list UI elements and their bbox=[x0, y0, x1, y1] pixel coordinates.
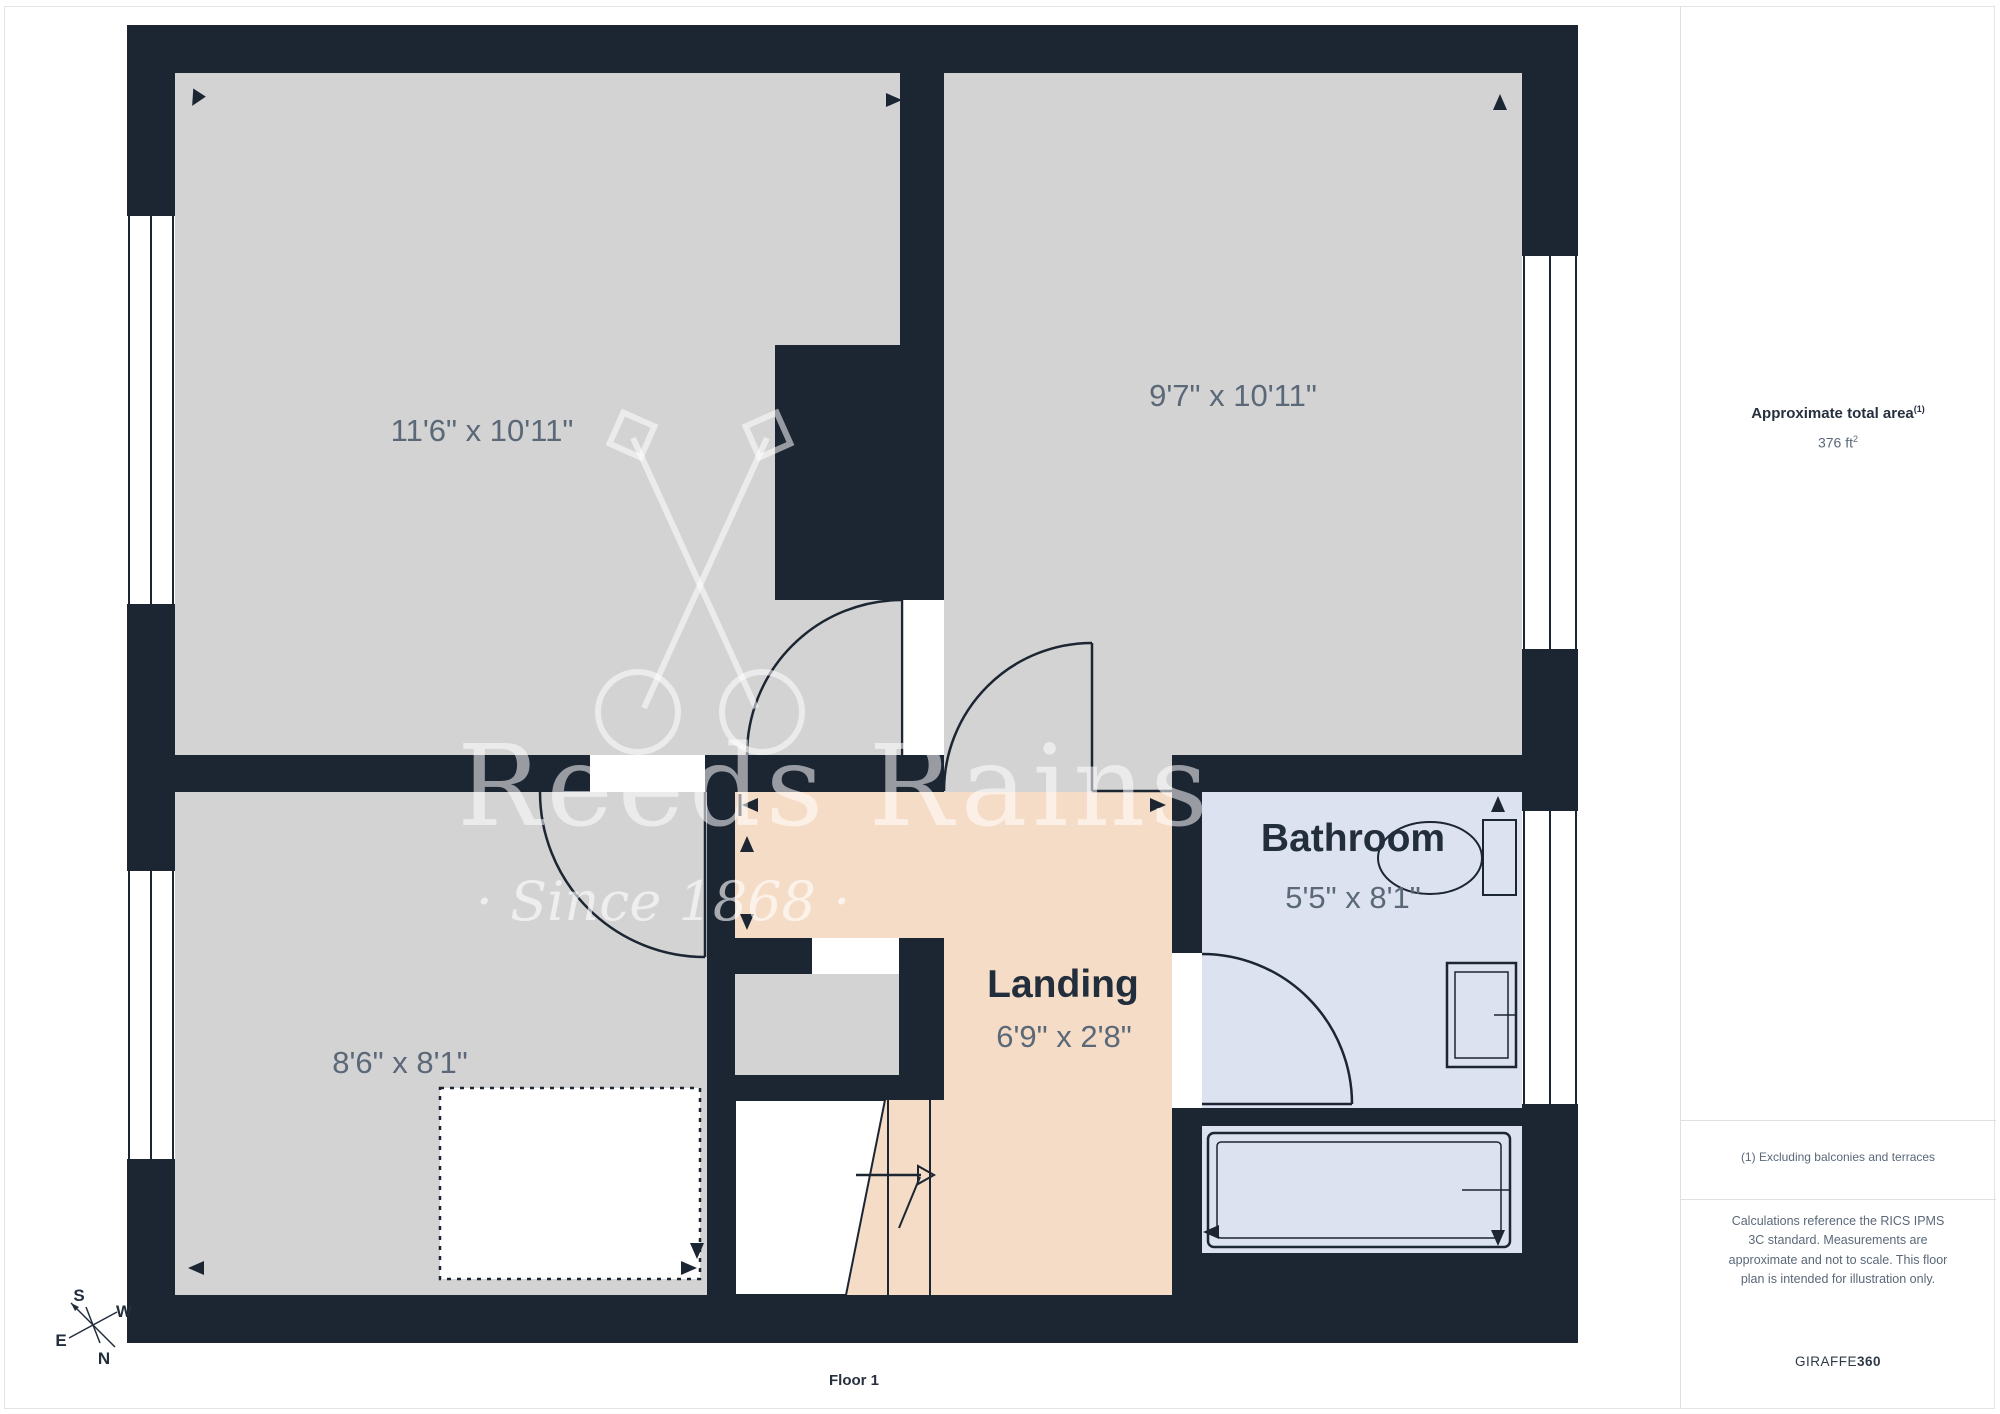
disclaimer-text: Calculations reference the RICS IPMS 3C … bbox=[1722, 1212, 1954, 1290]
compass-w: W bbox=[116, 1302, 133, 1321]
label-landing-name: Landing bbox=[987, 963, 1139, 1006]
chimney-block bbox=[775, 345, 944, 600]
giraffe360-logo-suffix: 360 bbox=[1857, 1354, 1881, 1369]
label-top-right-room-dims: 9'7" x 10'11" bbox=[1149, 378, 1317, 413]
wall-top bbox=[127, 25, 1578, 73]
window-top-right bbox=[1522, 255, 1578, 650]
wall-partition-top bbox=[900, 73, 944, 345]
floor-label: Floor 1 bbox=[754, 1372, 954, 1389]
storage-dashed-box bbox=[440, 1088, 700, 1279]
compass-e: E bbox=[55, 1331, 66, 1350]
total-area-title-text: Approximate total area bbox=[1751, 405, 1914, 422]
window-top-left bbox=[127, 215, 175, 605]
footnote-excluding-balconies: (1) Excluding balconies and terraces bbox=[1690, 1150, 1986, 1164]
closet-door-opening bbox=[812, 938, 899, 974]
wall-bathroom-top bbox=[1172, 755, 1578, 792]
floorplan-page: Reeds Rains · Since 1868 · 11'6" x 10'11… bbox=[0, 0, 2000, 1414]
wall-closet-bottom bbox=[707, 1075, 944, 1100]
wall-bottom-left-room-right bbox=[707, 792, 735, 1295]
sidebar-section-divider-2 bbox=[1680, 1199, 1996, 1200]
total-area-value-sup: 2 bbox=[1853, 434, 1858, 444]
floorplan-drawing: Reeds Rains · Since 1868 · 11'6" x 10'11… bbox=[0, 0, 2000, 1414]
compass-n: N bbox=[98, 1349, 110, 1368]
label-bathroom-dims: 5'5" x 8'1" bbox=[1285, 880, 1421, 915]
wall-bathtub-knee bbox=[1172, 1108, 1522, 1126]
total-area-value: 376 ft2 bbox=[1690, 434, 1986, 451]
watermark-brand-text: Reeds Rains bbox=[457, 722, 1213, 852]
label-landing-dims: 6'9" x 2'8" bbox=[996, 1019, 1132, 1054]
compass-s: S bbox=[73, 1286, 84, 1305]
wall-bathtub-alcove-bottom bbox=[1172, 1253, 1522, 1295]
sidebar-section-divider-1 bbox=[1680, 1120, 1996, 1121]
wall-right bbox=[1522, 25, 1578, 1343]
total-area-value-text: 376 ft bbox=[1818, 435, 1853, 451]
total-area-title-footnote-marker: (1) bbox=[1914, 404, 1925, 414]
wall-bottom bbox=[127, 1295, 1578, 1343]
watermark-since-text: · Since 1868 · bbox=[476, 870, 851, 933]
label-bottom-left-room-dims: 8'6" x 8'1" bbox=[332, 1045, 468, 1080]
giraffe360-logo: GIRAFFE360 bbox=[1690, 1354, 1986, 1369]
total-area-title: Approximate total area(1) bbox=[1690, 404, 1986, 422]
compass-icon: S W E N bbox=[55, 1286, 133, 1368]
room-top-right-fill bbox=[944, 73, 1522, 755]
window-bathroom bbox=[1522, 810, 1578, 1105]
giraffe360-logo-name: GIRAFFE bbox=[1795, 1354, 1857, 1369]
label-bathroom-name: Bathroom bbox=[1261, 817, 1445, 860]
label-top-left-room-dims: 11'6" x 10'11" bbox=[391, 413, 574, 448]
window-bottom-left bbox=[127, 870, 175, 1160]
closet-interior bbox=[735, 974, 899, 1075]
